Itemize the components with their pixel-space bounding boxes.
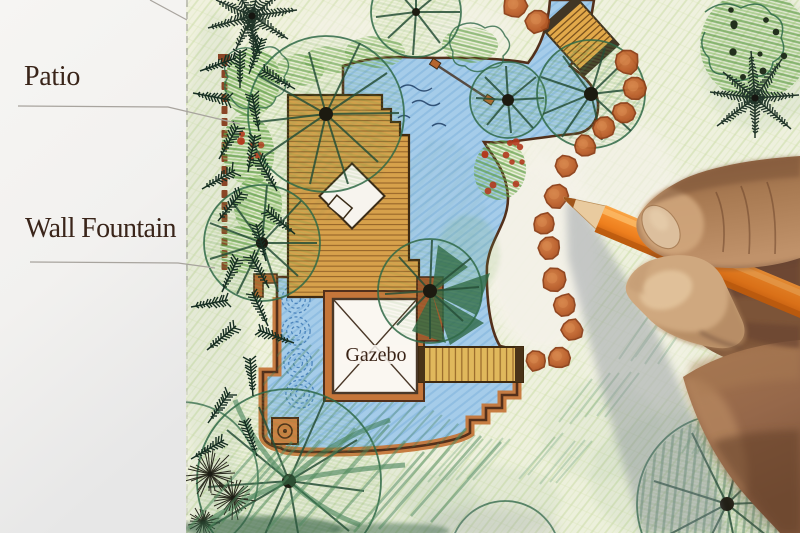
svg-text:Gazebo: Gazebo: [345, 344, 406, 366]
svg-text:Wall Fountain: Wall Fountain: [25, 213, 177, 244]
svg-text:Patio: Patio: [24, 61, 80, 92]
